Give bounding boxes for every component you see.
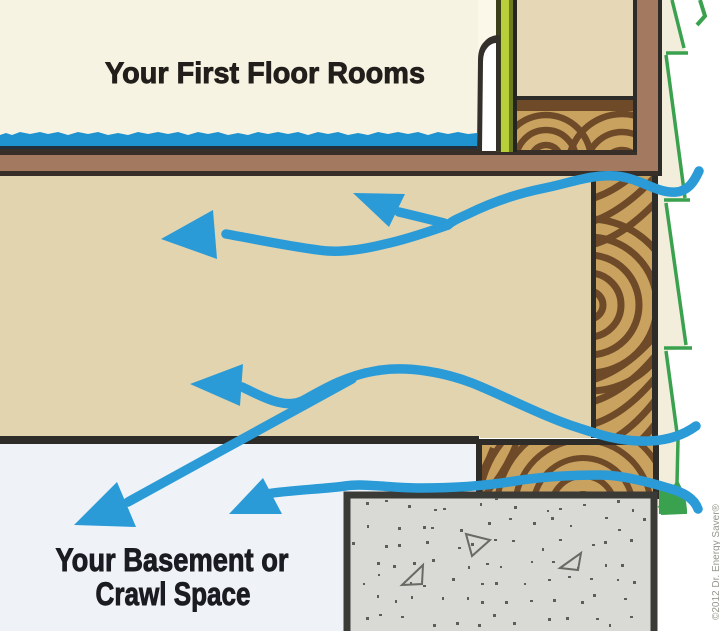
svg-text:Crawl Space: Crawl Space bbox=[96, 576, 251, 612]
svg-text:Your Basement or: Your Basement or bbox=[56, 542, 289, 578]
svg-text:©2012 Dr. Energy Saver®: ©2012 Dr. Energy Saver® bbox=[711, 503, 720, 620]
svg-text:Your First Floor Rooms: Your First Floor Rooms bbox=[105, 57, 425, 90]
